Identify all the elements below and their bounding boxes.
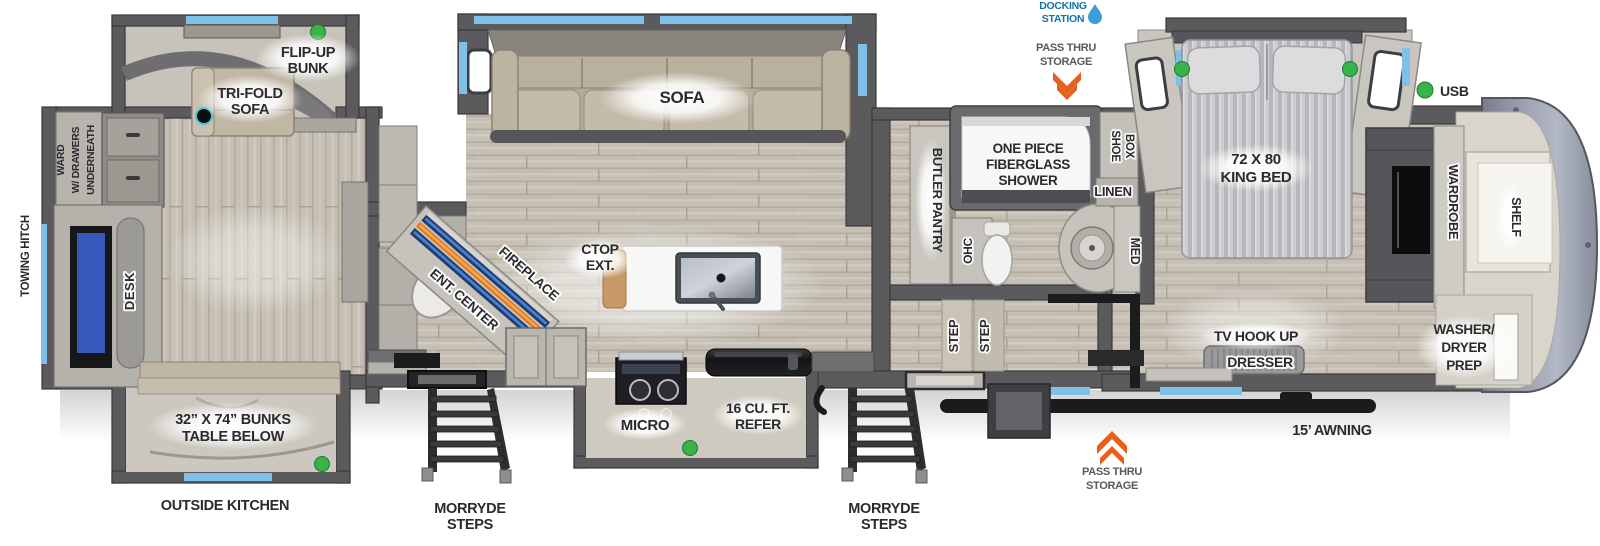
svg-text:DOCKING: DOCKING: [1039, 0, 1087, 12]
svg-text:TOWING HITCH: TOWING HITCH: [20, 215, 32, 297]
svg-text:STEP: STEP: [977, 319, 992, 352]
svg-text:MICRO: MICRO: [621, 417, 670, 434]
svg-text:FLIP-UP: FLIP-UP: [281, 45, 336, 61]
svg-text:CTOP: CTOP: [581, 241, 618, 257]
svg-text:BUTLER PANTRY: BUTLER PANTRY: [930, 148, 945, 253]
svg-text:DRYER: DRYER: [1441, 340, 1487, 355]
svg-text:PASS THRU: PASS THRU: [1082, 466, 1142, 478]
svg-text:STORAGE: STORAGE: [1040, 56, 1092, 68]
svg-text:STEP: STEP: [946, 319, 961, 352]
svg-text:UNDERNEATH: UNDERNEATH: [85, 125, 97, 195]
svg-text:STEPS: STEPS: [447, 517, 494, 533]
svg-text:W/ DRAWERS: W/ DRAWERS: [70, 127, 82, 194]
svg-text:OUTSIDE KITCHEN: OUTSIDE KITCHEN: [161, 498, 289, 514]
svg-text:SHOE: SHOE: [1109, 130, 1121, 162]
svg-text:WARD: WARD: [55, 144, 67, 176]
svg-text:WASHER/: WASHER/: [1434, 322, 1495, 337]
svg-text:REFER: REFER: [735, 416, 781, 432]
svg-text:STATION: STATION: [1042, 13, 1084, 25]
svg-text:LINEN: LINEN: [1094, 184, 1132, 199]
svg-text:FIBERGLASS: FIBERGLASS: [986, 157, 1070, 172]
svg-text:TRI-FOLD: TRI-FOLD: [217, 86, 282, 102]
svg-text:TABLE BELOW: TABLE BELOW: [182, 429, 285, 445]
svg-text:SOFA: SOFA: [659, 88, 704, 107]
svg-text:32” X 74” BUNKS: 32” X 74” BUNKS: [175, 412, 291, 428]
svg-text:PASS THRU: PASS THRU: [1036, 42, 1096, 54]
svg-text:PREP: PREP: [1446, 358, 1482, 373]
svg-text:WARDROBE: WARDROBE: [1446, 165, 1461, 241]
svg-text:SHOWER: SHOWER: [999, 173, 1059, 188]
svg-text:EXT.: EXT.: [586, 257, 614, 273]
svg-text:MORRYDE: MORRYDE: [848, 501, 920, 517]
svg-text:MED: MED: [1128, 238, 1142, 265]
svg-text:BOX: BOX: [1123, 134, 1135, 159]
svg-text:SHELF: SHELF: [1509, 197, 1523, 237]
svg-text:STORAGE: STORAGE: [1086, 480, 1138, 492]
svg-text:USB: USB: [1440, 83, 1469, 99]
svg-text:DESK: DESK: [122, 272, 137, 310]
svg-text:MORRYDE: MORRYDE: [434, 501, 506, 517]
svg-text:DRESSER: DRESSER: [1227, 354, 1293, 370]
svg-text:BUNK: BUNK: [288, 61, 330, 77]
svg-text:SOFA: SOFA: [231, 102, 270, 118]
svg-text:ONE PIECE: ONE PIECE: [993, 141, 1064, 156]
svg-text:STEPS: STEPS: [861, 517, 908, 533]
svg-text:15’ AWNING: 15’ AWNING: [1292, 423, 1371, 439]
svg-text:OHC: OHC: [961, 237, 975, 263]
svg-text:TV HOOK UP: TV HOOK UP: [1214, 328, 1298, 344]
svg-text:KING BED: KING BED: [1221, 169, 1292, 186]
svg-text:72 X 80: 72 X 80: [1231, 151, 1281, 168]
svg-text:16 CU. FT.: 16 CU. FT.: [726, 400, 790, 416]
